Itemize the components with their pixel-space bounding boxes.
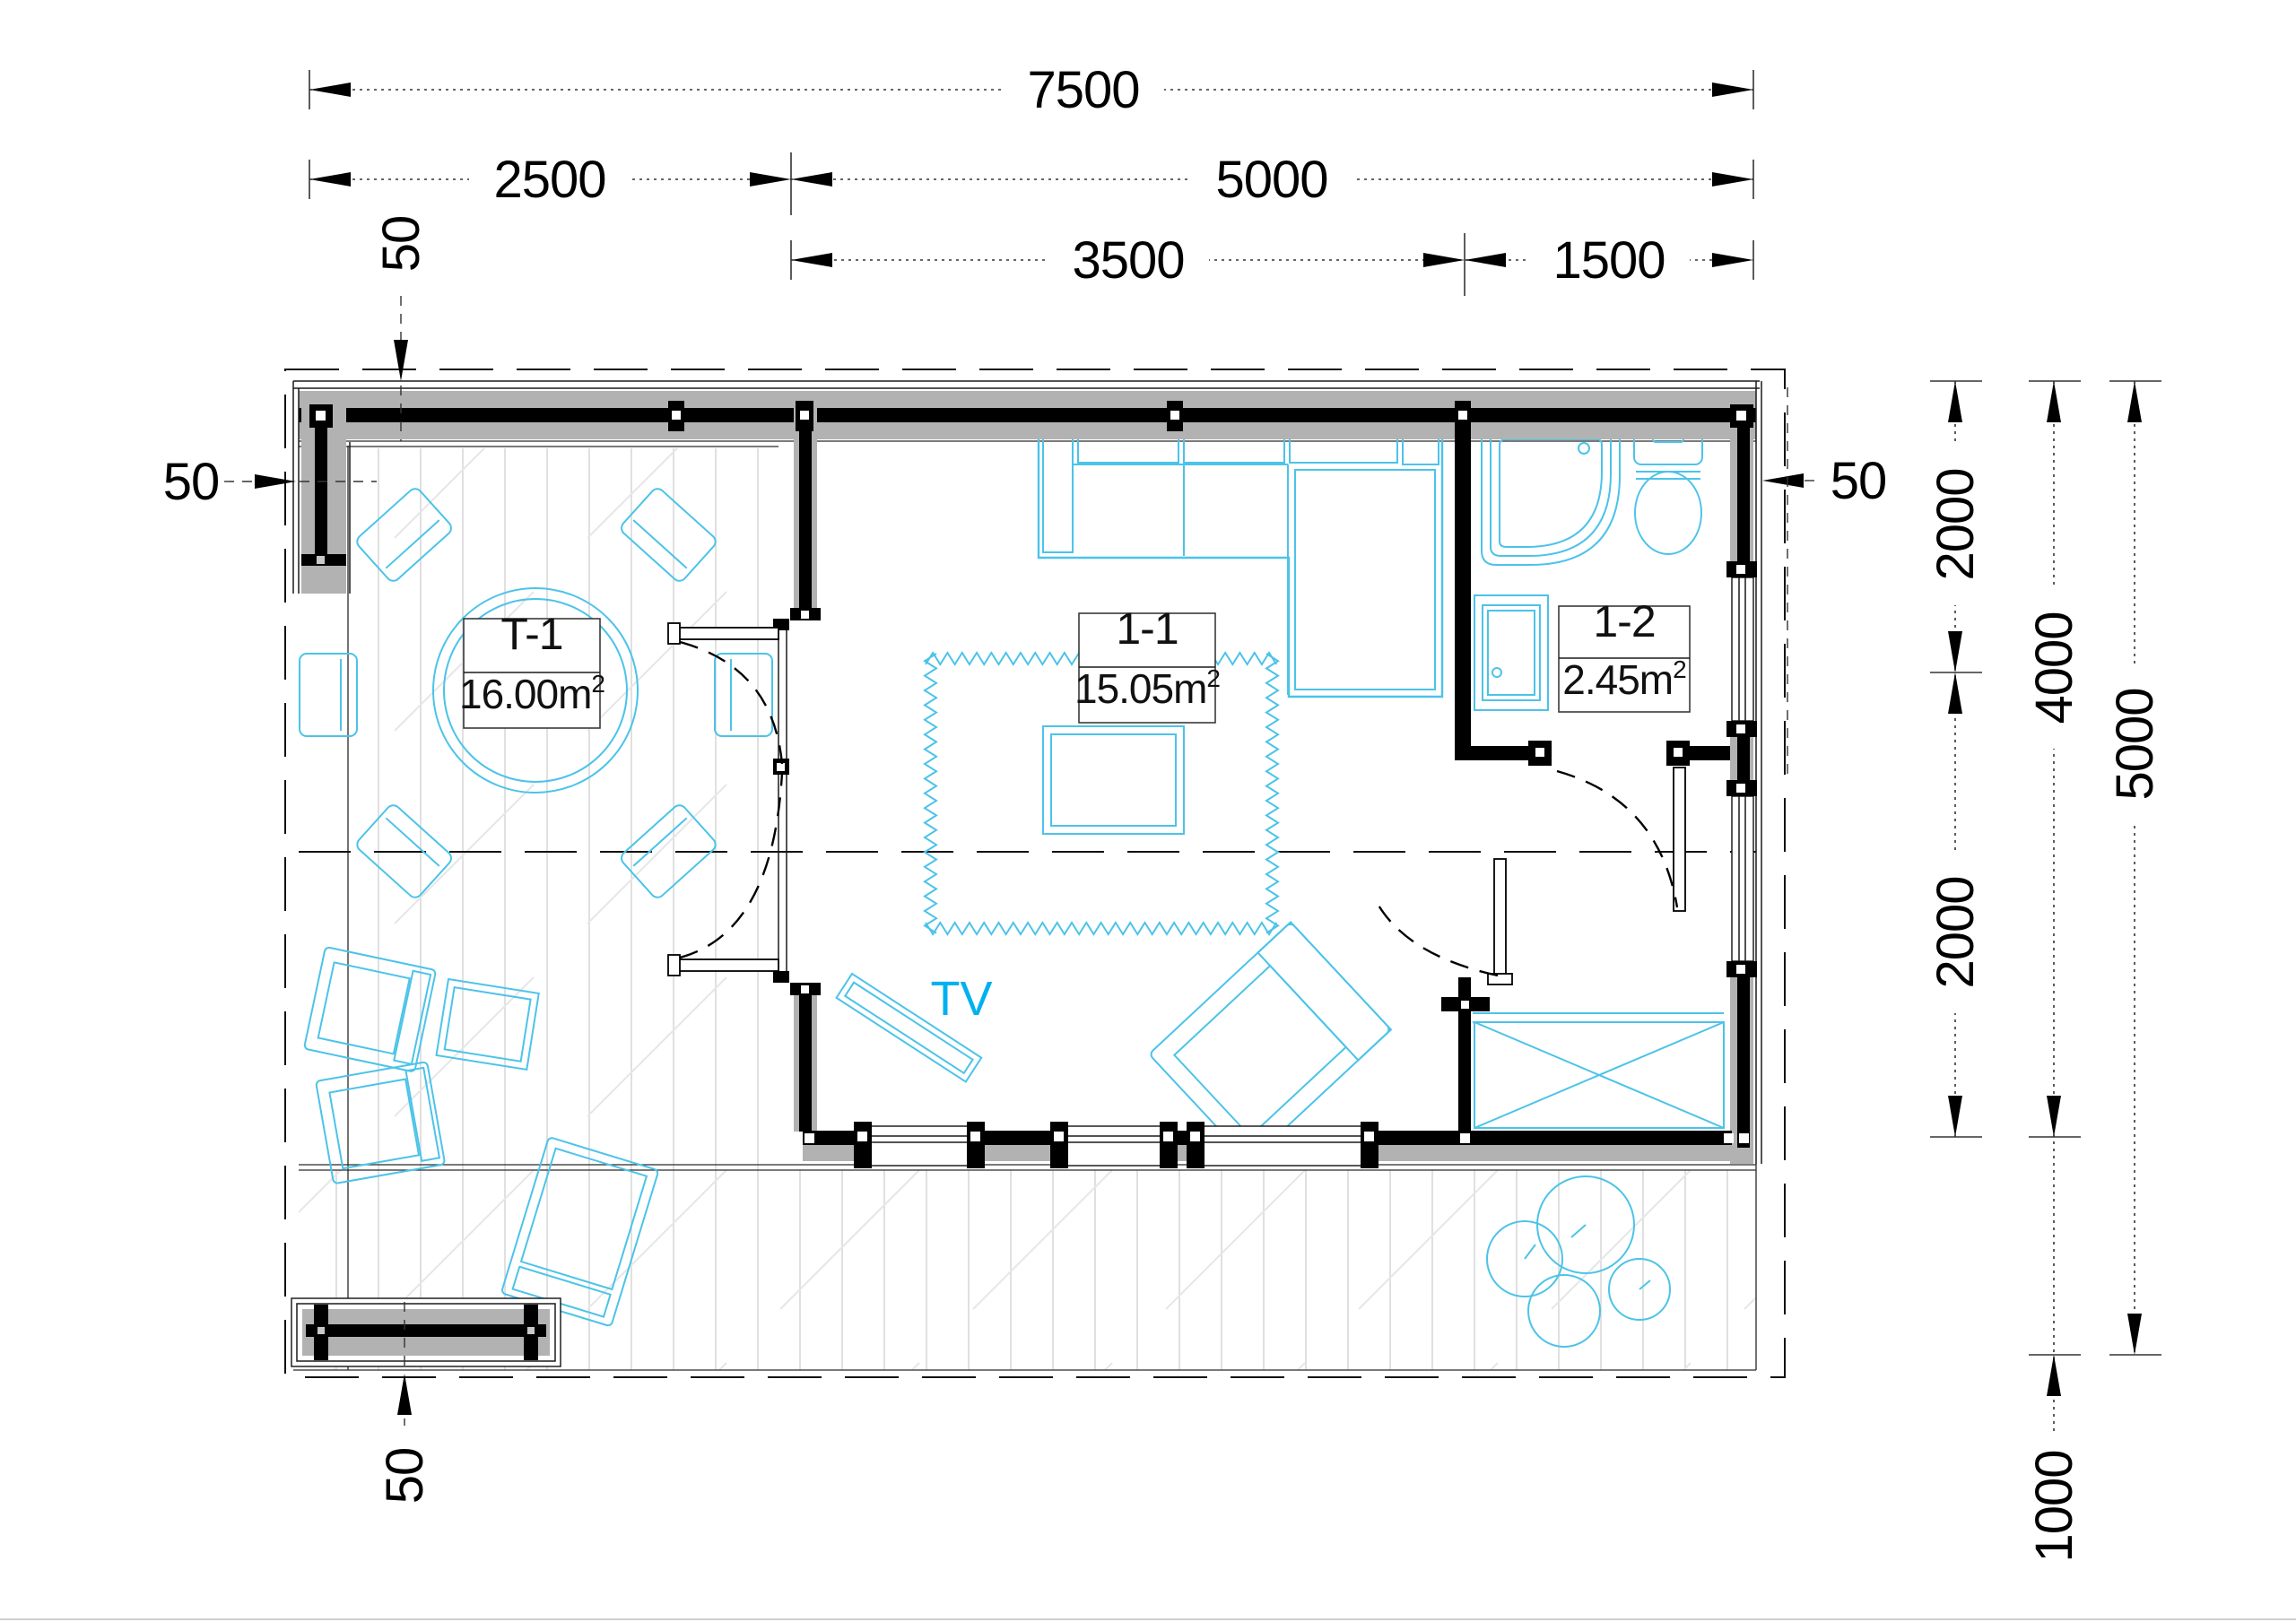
dim-overall-width-label: 7500 xyxy=(1027,61,1139,119)
floor-plan-page: T-1 16.00m2 1-1 15.05m2 1-2 2.45m2 TV 75… xyxy=(0,0,2296,1622)
room-label-12: 1-2 2.45m2 xyxy=(1559,596,1690,712)
room-area: 2.45m2 xyxy=(1562,655,1686,703)
svg-text:50: 50 xyxy=(372,216,430,273)
window-icon xyxy=(1726,561,1757,737)
terrace-deck xyxy=(293,441,1756,1370)
room-area: 15.05m2 xyxy=(1074,664,1220,712)
window-icon xyxy=(1726,780,1757,977)
dim-right-terrace-label: 1000 xyxy=(2025,1450,2083,1562)
window-icon xyxy=(1187,1122,1378,1168)
dim-right-upper-label: 2000 xyxy=(1926,468,1985,580)
window-icon xyxy=(1050,1122,1178,1168)
room-label-T1: T-1 16.00m2 xyxy=(459,609,604,728)
room-id: 1-2 xyxy=(1593,596,1655,646)
shower-icon xyxy=(1482,421,1620,565)
coffee-table-icon xyxy=(1043,726,1184,834)
svg-text:50: 50 xyxy=(1831,452,1887,510)
bathroom-door xyxy=(1557,768,1685,911)
dim-right-lower-label: 2000 xyxy=(1926,876,1985,988)
dim-bath-width-label: 1500 xyxy=(1552,231,1665,290)
room-id: T-1 xyxy=(500,609,562,659)
svg-text:50: 50 xyxy=(163,453,220,511)
deck-storage-box xyxy=(1473,1013,1724,1128)
room-area: 16.00m2 xyxy=(459,670,604,717)
wall-thickness-right: 50 xyxy=(1762,387,1886,776)
planter-wall xyxy=(291,1298,561,1366)
room-label-11: 1-1 15.05m2 xyxy=(1074,603,1220,723)
dim-right-main-label: 4000 xyxy=(2025,612,2083,724)
sink-cabinet-icon xyxy=(1474,595,1548,710)
tv-label: TV xyxy=(930,972,992,1026)
dim-house-width-label: 5000 xyxy=(1215,151,1327,209)
room-id: 1-1 xyxy=(1116,603,1178,654)
dim-right-total-label: 5000 xyxy=(2106,688,2164,800)
window-icon xyxy=(854,1122,985,1168)
porch-door xyxy=(1378,859,1512,984)
floor-plan-svg: T-1 16.00m2 1-1 15.05m2 1-2 2.45m2 TV 75… xyxy=(0,0,2296,1622)
dim-terrace-width-label: 2500 xyxy=(493,151,605,209)
dim-living-width-label: 3500 xyxy=(1072,231,1184,290)
living-room-furniture xyxy=(837,429,1442,1162)
svg-text:50: 50 xyxy=(376,1448,434,1505)
